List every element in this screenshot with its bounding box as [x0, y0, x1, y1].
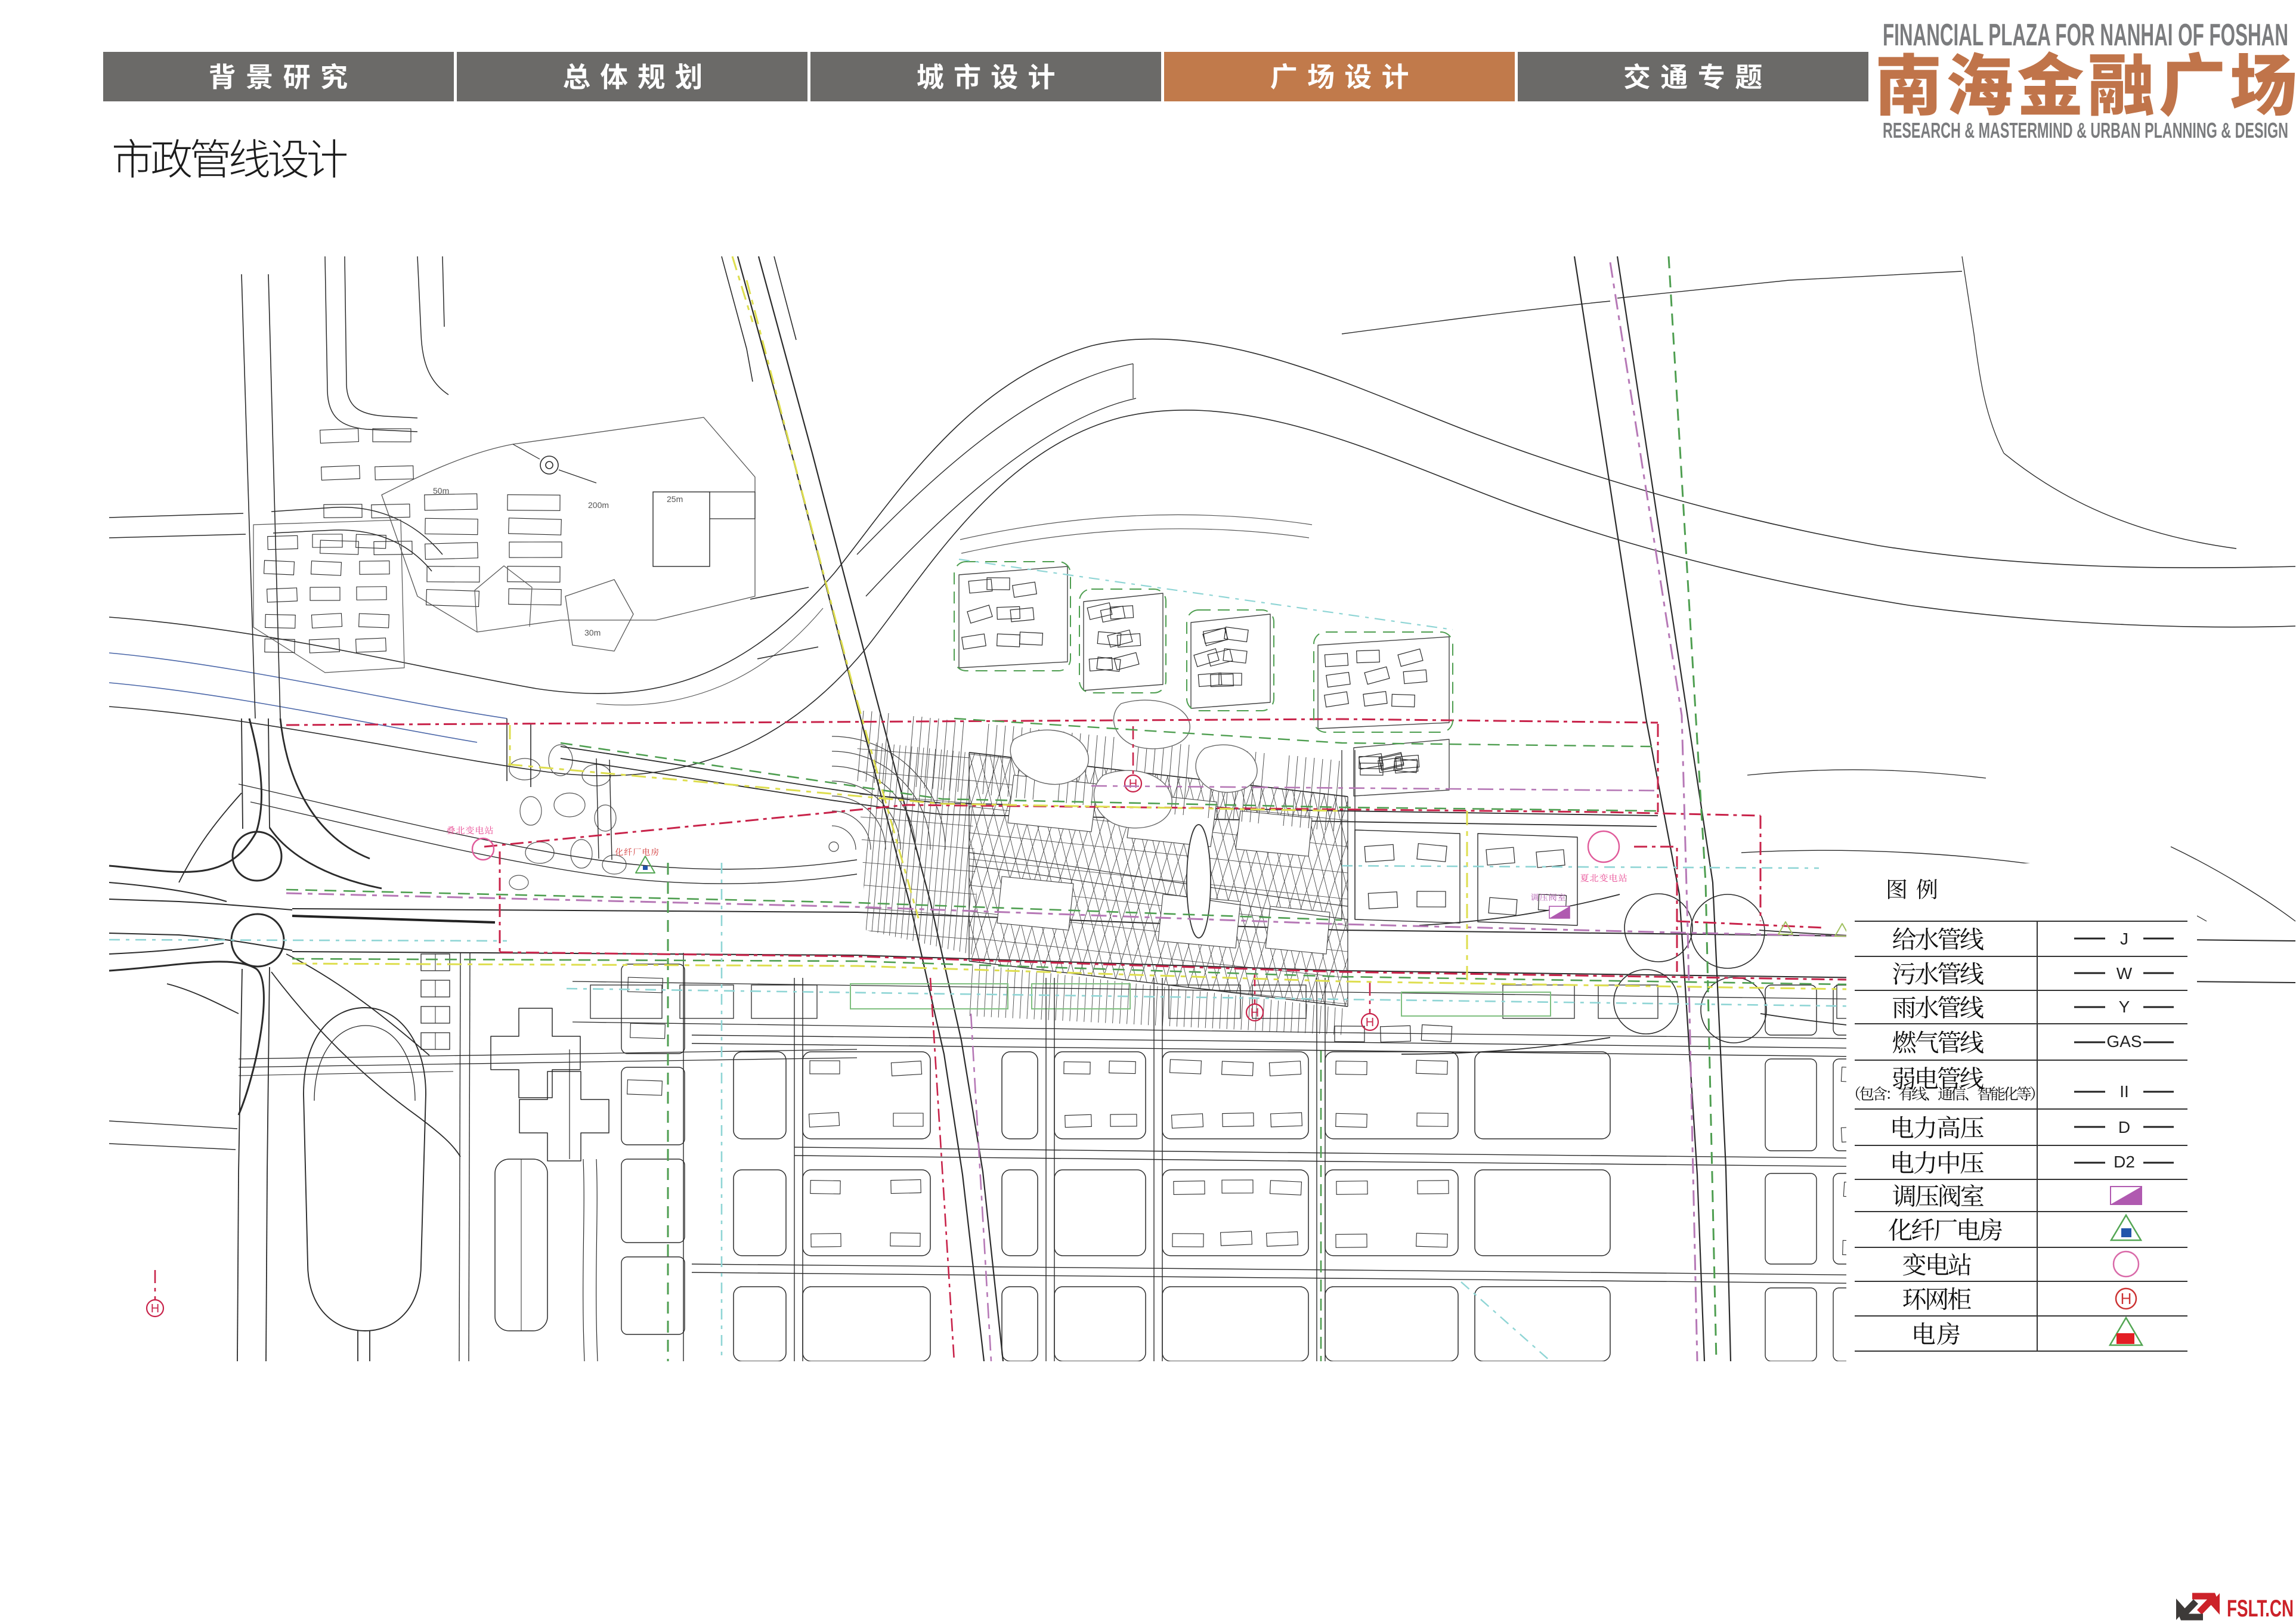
svg-text:H: H: [1251, 1006, 1259, 1020]
svg-text:RESEARCH & MASTERMIND & URBAN: RESEARCH & MASTERMIND & URBAN PLANNING &…: [1883, 118, 2288, 143]
svg-text:H: H: [1129, 778, 1137, 791]
svg-text:25m: 25m: [667, 494, 683, 504]
svg-text:FSLT.CN: FSLT.CN: [2227, 1596, 2294, 1622]
svg-text:H: H: [1366, 1016, 1374, 1029]
svg-text:H: H: [151, 1302, 159, 1315]
svg-text:W: W: [2116, 964, 2133, 983]
svg-text:H: H: [2121, 1290, 2132, 1308]
svg-text:J: J: [2120, 930, 2128, 948]
svg-text:GAS: GAS: [2106, 1032, 2142, 1051]
svg-text:Y: Y: [2119, 998, 2130, 1016]
svg-text:FINANCIAL PLAZA FOR NANHAI OF: FINANCIAL PLAZA FOR NANHAI OF FOSHAN: [1883, 18, 2288, 52]
svg-text:200m: 200m: [588, 500, 609, 510]
svg-text:50m: 50m: [433, 486, 449, 495]
svg-text:D: D: [2118, 1118, 2130, 1136]
svg-text:D2: D2: [2114, 1153, 2135, 1171]
svg-text:30m: 30m: [584, 628, 601, 637]
svg-text:II: II: [2119, 1082, 2129, 1101]
